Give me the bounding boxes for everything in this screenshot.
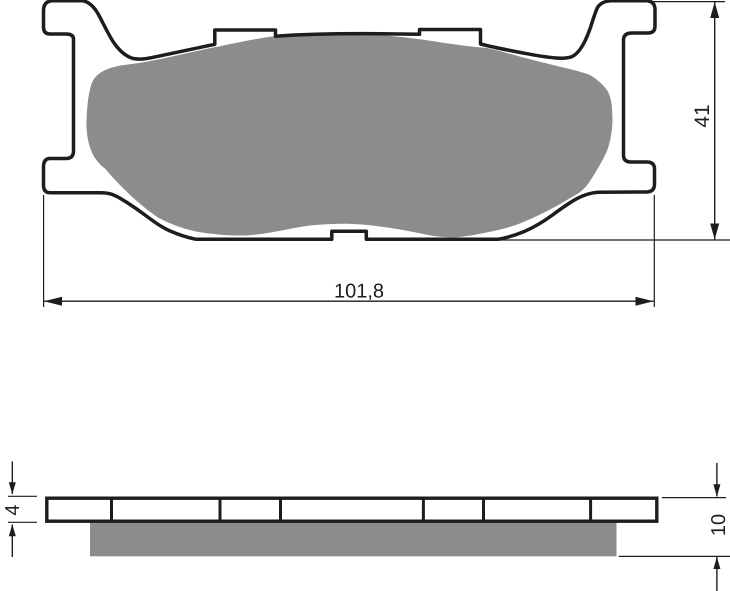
svg-text:4: 4 (2, 504, 24, 515)
svg-text:101,8: 101,8 (334, 281, 384, 303)
svg-text:10: 10 (708, 514, 730, 536)
svg-text:41: 41 (691, 104, 714, 127)
